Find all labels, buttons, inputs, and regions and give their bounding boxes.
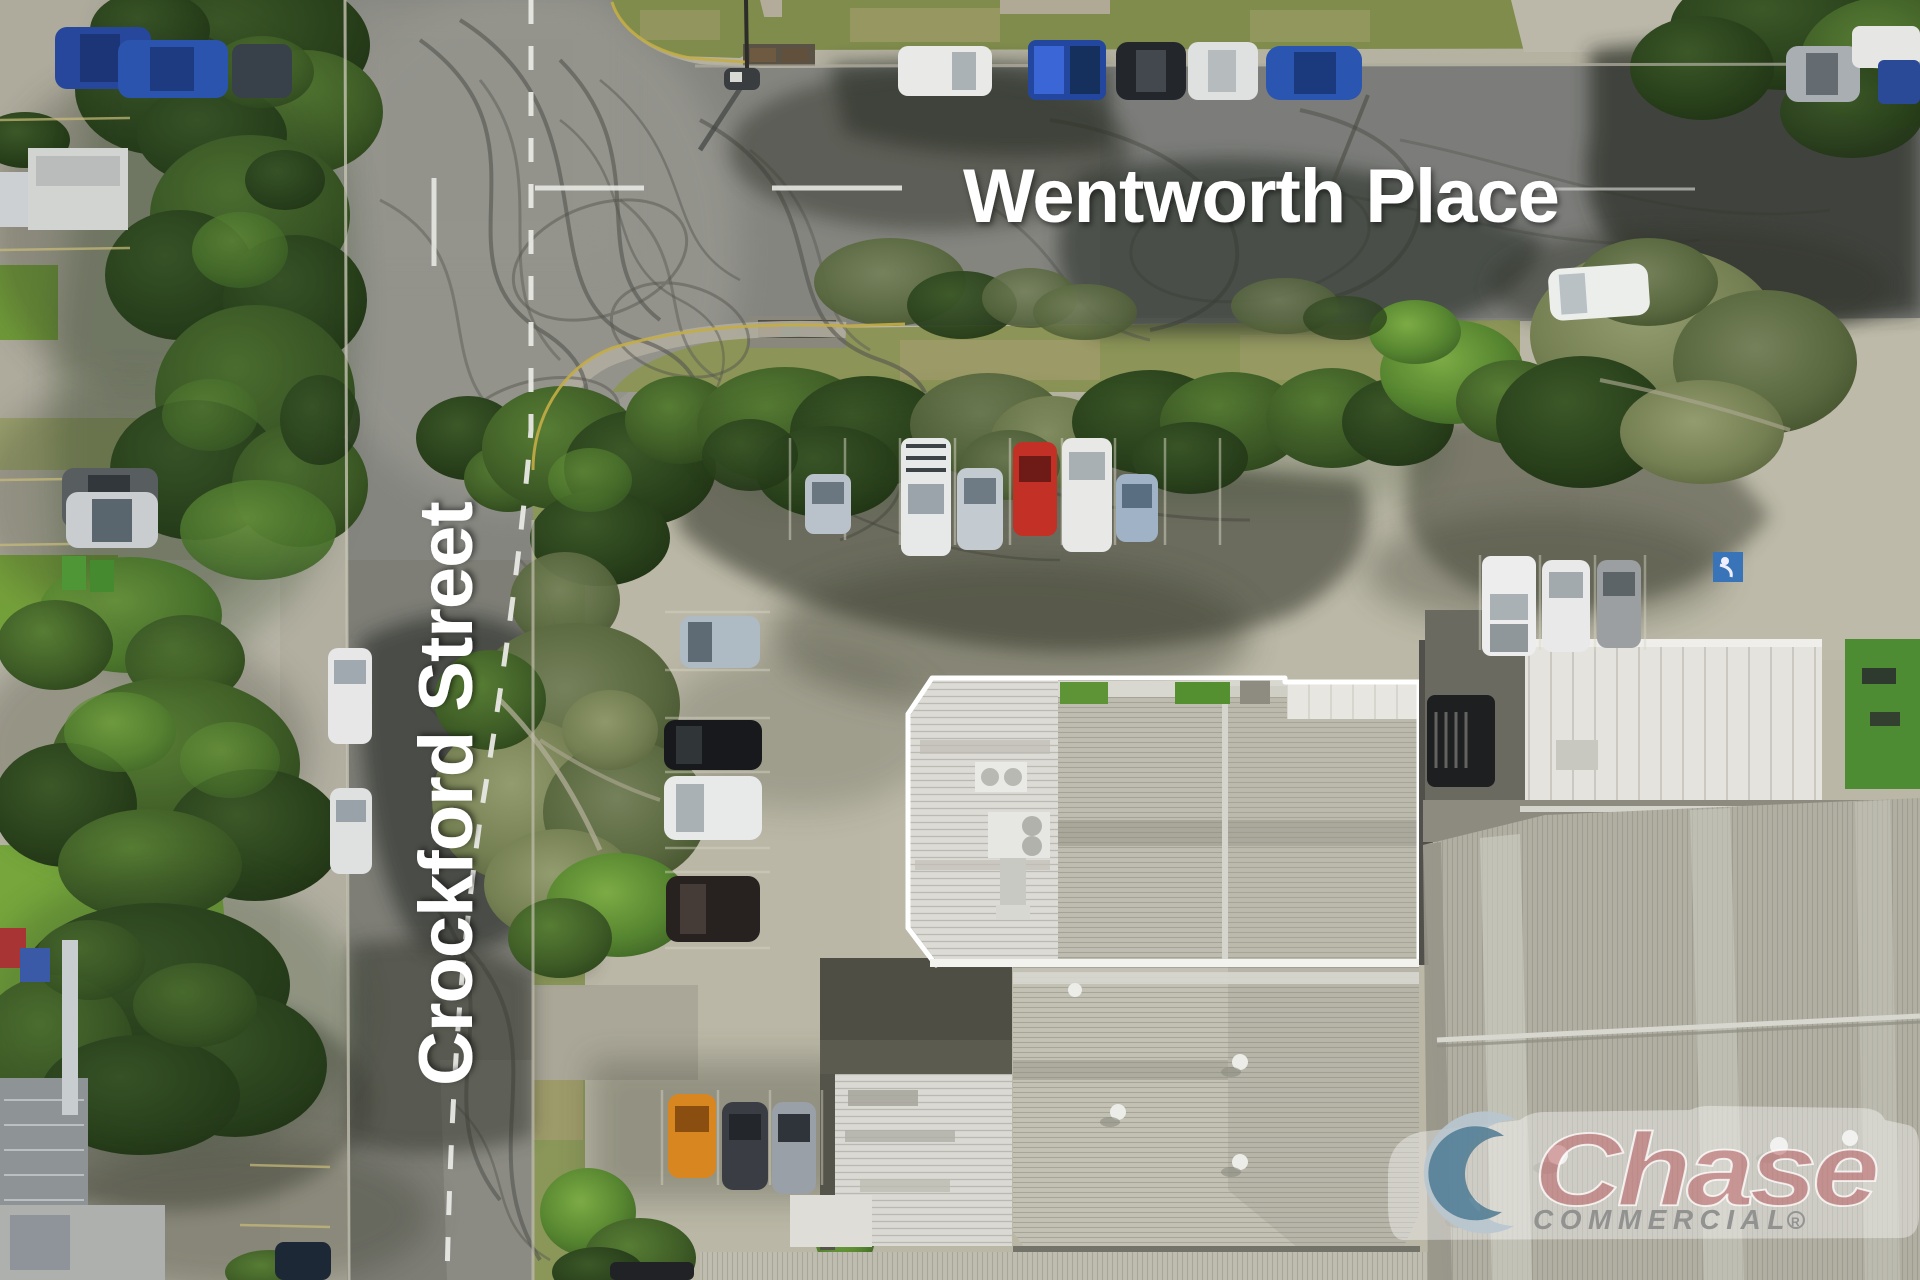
svg-text:COMMERCIAL: COMMERCIAL: [1533, 1204, 1791, 1235]
svg-text:Crockford Street: Crockford Street: [404, 502, 489, 1086]
svg-text:Wentworth Place: Wentworth Place: [963, 154, 1559, 239]
svg-text:R: R: [1791, 1215, 1800, 1229]
